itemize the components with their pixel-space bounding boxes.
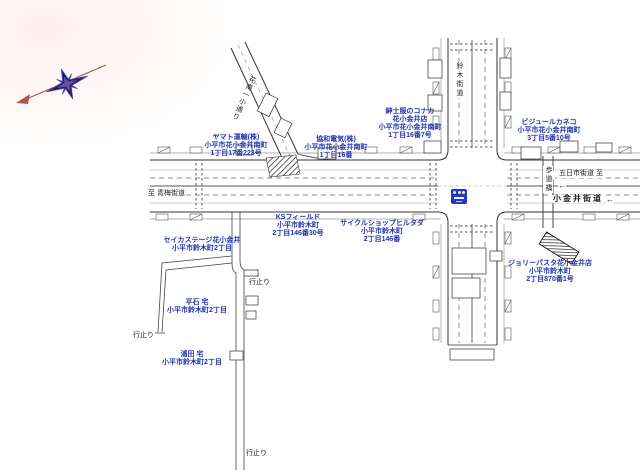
road-label-to-ome-kaido: 至 青梅街道	[147, 190, 186, 198]
poi-name: KSフィールド	[262, 214, 334, 222]
arrow-icon: ←	[606, 196, 614, 204]
dead-end-label: 行止り	[133, 332, 154, 339]
poi-label-yamato: ヤマト運輸(株) 小平市花小金井南町 1丁目17番223号	[196, 134, 276, 158]
poi-name: 紳士服のコナカ	[372, 108, 448, 116]
poi-name: ジョリーパスタ花小金井店	[502, 260, 598, 268]
poi-town: 小平市花小金井南町	[372, 124, 448, 132]
road-koganei-kaido-lanes	[150, 153, 640, 219]
poi-name: 平石 宅	[158, 299, 236, 307]
poi-label-cycle-shop: サイクルショップヒルタダ 小平市鈴木町 2丁目146番	[340, 220, 424, 244]
poi-label-ks-field: KSフィールド 小平市鈴木町 2丁目146番30号	[262, 214, 334, 238]
road-label-itsukaichi-kaido: 五日市街道 至	[558, 170, 604, 178]
dead-end-label: 行止り	[249, 279, 270, 286]
signal-lights	[453, 191, 465, 194]
poi-label-bijoule-kaneko: ビジュールカネコ 小平市花小金井南町 3丁目5番10号	[506, 119, 592, 143]
poi-name: ヤマト運輸(株)	[196, 134, 276, 142]
poi-label-jolly-pasta: ジョリーパスタ花小金井店 小平市鈴木町 2丁目870番1号	[502, 260, 598, 284]
poi-label-urata: 浦田 宅 小平市鈴木町2丁目	[153, 351, 231, 367]
poi-label-seika-stage: セイカステージ花小金井 小平市鈴木町2丁目	[150, 237, 254, 253]
poi-name: ビジュールカネコ	[506, 119, 592, 127]
compass-rose-icon	[16, 61, 106, 107]
poi-name: サイクルショップヒルタダ	[340, 220, 424, 228]
traffic-signal-icon	[451, 189, 467, 204]
road-label-koganei-kaido: 小金井街道	[552, 195, 604, 203]
poi-address: 2丁目870番1号	[502, 276, 598, 284]
poi-branch: 花小金井店	[372, 116, 448, 124]
poi-address: 2丁目146番	[340, 236, 424, 244]
poi-town: 小平市鈴木町2丁目	[153, 359, 231, 367]
poi-address: 1丁目16番7号	[372, 132, 448, 140]
poi-town: 小平市花小金井南町	[506, 127, 592, 135]
poi-address: 2丁目146番30号	[262, 230, 334, 238]
poi-name: 協和電気(株)	[294, 136, 378, 144]
poi-name: 浦田 宅	[153, 351, 231, 359]
building-footprints	[230, 58, 612, 360]
poi-label-kyowa-denki: 協和電気(株) 小平市花小金井南町 1丁目16番	[294, 136, 378, 160]
poi-label-konaka: 紳士服のコナカ 花小金井店 小平市花小金井南町 1丁目16番7号	[372, 108, 448, 140]
road-label-suzuki-kaido: 鈴木街道	[454, 62, 464, 98]
poi-town: 小平市鈴木町2丁目	[158, 307, 236, 315]
poi-town: 小平市鈴木町	[262, 222, 334, 230]
poi-town: 小平市鈴木町	[340, 228, 424, 236]
dead-end-label: 行止り	[246, 450, 267, 457]
road-label-pedestrian-bridge: 歩道橋	[543, 166, 553, 193]
poi-label-hiraishi: 平石 宅 小平市鈴木町2丁目	[158, 299, 236, 315]
map-canvas[interactable]: ヤマト運輸(株) 小平市花小金井南町 1丁目17番223号 協和電気(株) 小平…	[0, 0, 640, 475]
arrow-icon: ←	[558, 182, 566, 190]
poi-town: 小平市鈴木町2丁目	[150, 245, 254, 253]
signal-name-glyphs	[454, 197, 464, 199]
poi-name: セイカステージ花小金井	[150, 237, 254, 245]
poi-address: 1丁目16番	[294, 152, 378, 160]
poi-address: 1丁目17番223号	[196, 150, 276, 158]
poi-town: 小平市花小金井南町	[196, 142, 276, 150]
poi-town: 小平市花小金井南町	[294, 144, 378, 152]
poi-town: 小平市鈴木町	[502, 268, 598, 276]
poi-address: 3丁目5番10号	[506, 135, 592, 143]
signal-name-glyphs	[456, 201, 462, 202]
